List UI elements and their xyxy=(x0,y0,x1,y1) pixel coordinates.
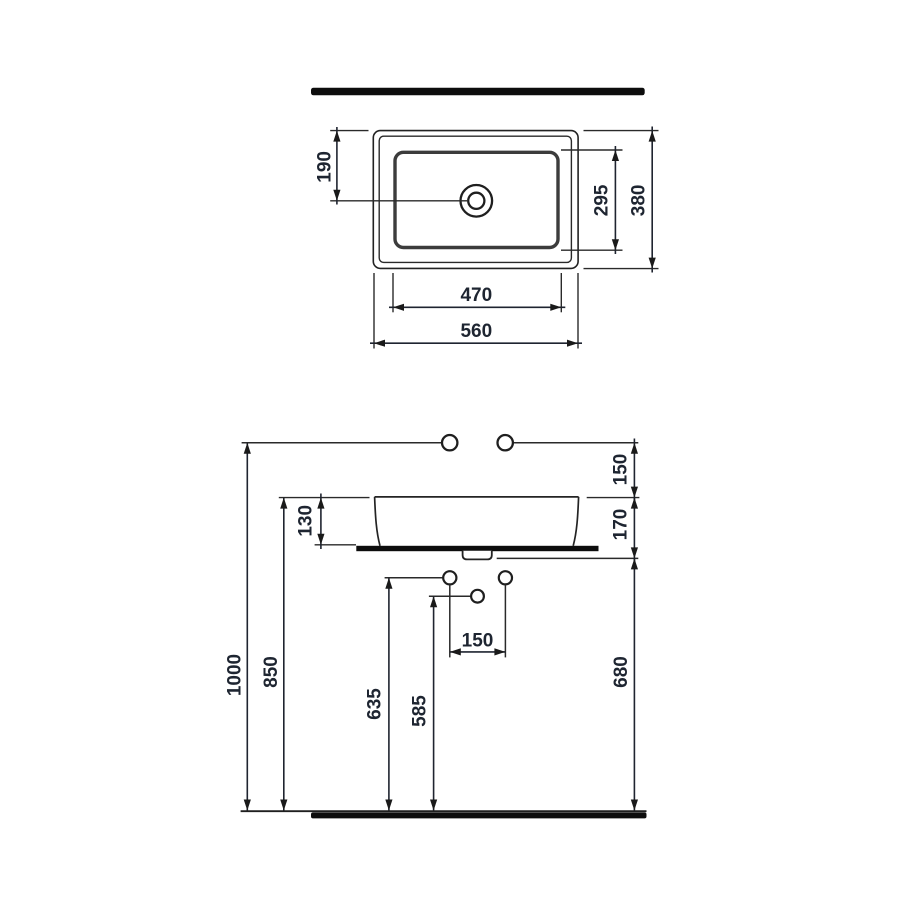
svg-text:380: 380 xyxy=(629,185,650,217)
svg-text:680: 680 xyxy=(611,656,632,688)
svg-text:850: 850 xyxy=(261,656,282,688)
svg-text:470: 470 xyxy=(460,285,492,306)
svg-text:130: 130 xyxy=(296,505,317,537)
svg-text:150: 150 xyxy=(462,631,494,652)
svg-text:150: 150 xyxy=(611,454,632,486)
svg-text:1000: 1000 xyxy=(225,654,246,696)
svg-text:295: 295 xyxy=(592,184,613,216)
svg-text:635: 635 xyxy=(365,688,386,720)
svg-text:585: 585 xyxy=(410,695,431,727)
svg-text:170: 170 xyxy=(611,509,632,541)
svg-text:560: 560 xyxy=(460,321,492,342)
svg-text:190: 190 xyxy=(315,151,336,183)
